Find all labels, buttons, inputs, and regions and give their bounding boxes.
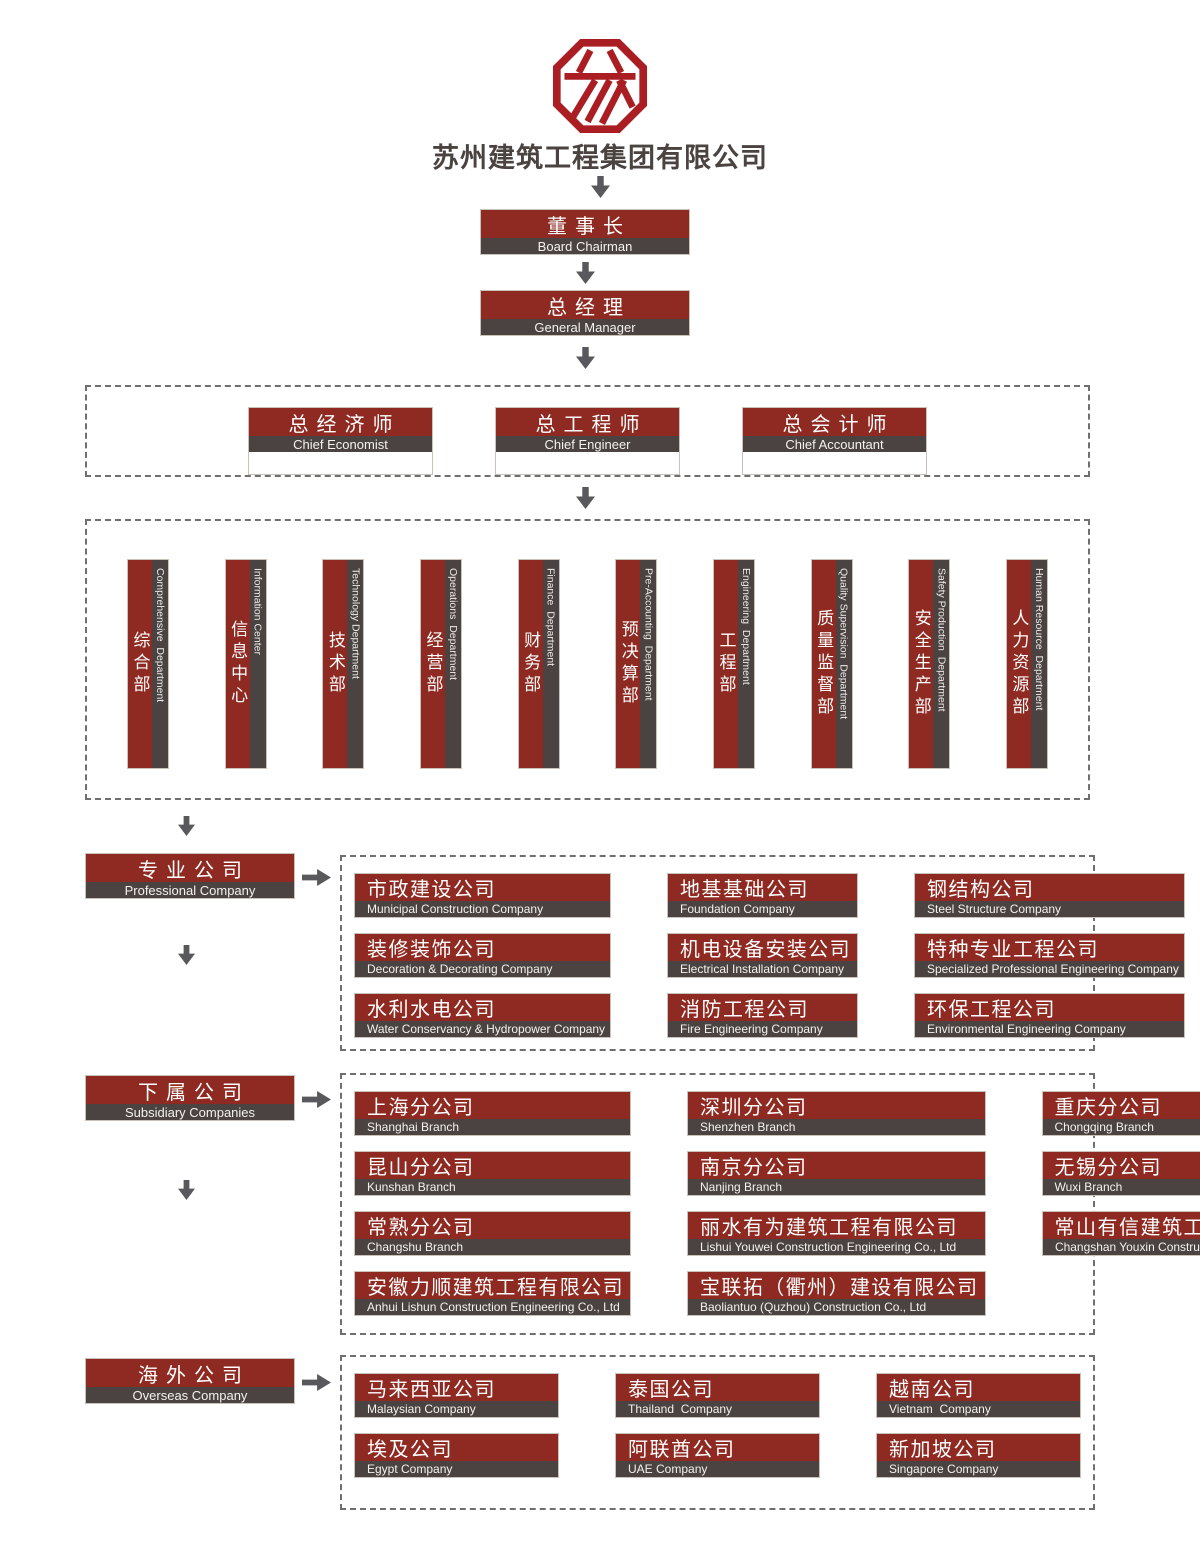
- node-title-zh: 总经理: [481, 291, 689, 319]
- node-company: 市政建设公司 Municipal Construction Company: [354, 873, 611, 918]
- company-name-en: Malaysian Company: [355, 1401, 558, 1417]
- department-name-en: Information Center: [250, 560, 266, 768]
- label-zh: 专业公司: [86, 854, 294, 882]
- company-name-en: Shenzhen Branch: [688, 1119, 985, 1135]
- department-name-zh: 工程部: [714, 560, 738, 768]
- node-chief: 总工程师 Chief Engineer: [495, 407, 680, 475]
- node-company: 丽水有为建筑工程有限公司 Lishui Youwei Construction …: [687, 1211, 986, 1256]
- node-company: 无锡分公司 Wuxi Branch: [1042, 1151, 1200, 1196]
- company-name-zh: 常山有信建筑工程有限公司: [1043, 1212, 1200, 1239]
- company-name-en: UAE Company: [616, 1461, 819, 1477]
- company-name-zh: 越南公司: [877, 1374, 1080, 1401]
- node-department: 技术部 Technology Department: [322, 559, 364, 769]
- node-company: 埃及公司 Egypt Company: [354, 1433, 559, 1478]
- department-name-zh: 技术部: [323, 560, 347, 768]
- node-title-en: Chief Economist: [249, 436, 432, 452]
- company-name-en: Nanjing Branch: [688, 1179, 985, 1195]
- company-name-zh: 装修装饰公司: [355, 934, 610, 961]
- chiefs-group: 总经济师 Chief Economist 总工程师 Chief Engineer…: [85, 385, 1090, 477]
- node-title-en: Board Chairman: [481, 238, 689, 254]
- department-name-zh: 质量监督部: [812, 560, 836, 768]
- company-name-en: Baoliantuo (Quzhou) Construction Co., Lt…: [688, 1299, 985, 1315]
- company-name-zh: 泰国公司: [616, 1374, 819, 1401]
- node-department: 财务部 Finance Department: [518, 559, 560, 769]
- node-company: 环保工程公司 Environmental Engineering Company: [914, 993, 1185, 1038]
- node-company: 机电设备安装公司 Electrical Installation Company: [667, 933, 858, 978]
- company-name-zh: 重庆分公司: [1043, 1092, 1200, 1119]
- node-company: 宝联拓（衢州）建设有限公司 Baoliantuo (Quzhou) Constr…: [687, 1271, 986, 1316]
- company-name-en: Electrical Installation Company: [668, 961, 857, 977]
- node-general-manager: 总经理 General Manager: [480, 290, 690, 336]
- company-name-en: Thailand Company: [616, 1401, 819, 1417]
- department-name-en: Engineering Department: [738, 560, 754, 768]
- flow-arrow-down-icon: [178, 816, 195, 836]
- node-title-zh: 总工程师: [496, 408, 679, 436]
- company-name-en: Steel Structure Company: [915, 901, 1184, 917]
- company-name-zh: 钢结构公司: [915, 874, 1184, 901]
- label-subsidiary-companies: 下属公司 Subsidiary Companies: [85, 1075, 295, 1121]
- node-company: 昆山分公司 Kunshan Branch: [354, 1151, 631, 1196]
- company-name-en: Kunshan Branch: [355, 1179, 630, 1195]
- node-title-en: Chief Engineer: [496, 436, 679, 452]
- company-name-en: Water Conservancy & Hydropower Company: [355, 1021, 610, 1037]
- node-company: 钢结构公司 Steel Structure Company: [914, 873, 1185, 918]
- company-name-en: Lishui Youwei Construction Engineering C…: [688, 1239, 985, 1255]
- company-name-en: Changshu Branch: [355, 1239, 630, 1255]
- company-name-zh: 南京分公司: [688, 1152, 985, 1179]
- node-company: 消防工程公司 Fire Engineering Company: [667, 993, 858, 1038]
- node-company: 新加坡公司 Singapore Company: [876, 1433, 1081, 1478]
- label-overseas-company: 海外公司 Overseas Company: [85, 1358, 295, 1404]
- node-department: 经营部 Operations Department: [420, 559, 462, 769]
- node-chief: 总经济师 Chief Economist: [248, 407, 433, 475]
- professional-companies-group: 市政建设公司 Municipal Construction Company 地基…: [340, 855, 1095, 1051]
- company-name-zh: 特种专业工程公司: [915, 934, 1184, 961]
- node-department: 预决算部 Pre-Accounting Department: [615, 559, 657, 769]
- node-company: 常山有信建筑工程有限公司 Changshan Youxin Constructi…: [1042, 1211, 1200, 1256]
- company-name-zh: 消防工程公司: [668, 994, 857, 1021]
- label-en: Subsidiary Companies: [86, 1104, 294, 1120]
- company-name-en: Municipal Construction Company: [355, 901, 610, 917]
- org-chart-page: 苏州建筑工程集团有限公司 董事长 Board Chairman 总经理 Gene…: [0, 0, 1200, 1554]
- company-name-en: Specialized Professional Engineering Com…: [915, 961, 1184, 977]
- node-department: 信息中心 Information Center: [225, 559, 267, 769]
- node-title-en: Chief Accountant: [743, 436, 926, 452]
- company-name-en: Egypt Company: [355, 1461, 558, 1477]
- department-name-en: Operations Department: [445, 560, 461, 768]
- node-board-chairman: 董事长 Board Chairman: [480, 209, 690, 255]
- company-name: 苏州建筑工程集团有限公司: [0, 136, 1200, 175]
- department-name-zh: 信息中心: [226, 560, 250, 768]
- node-title-zh: 总经济师: [249, 408, 432, 436]
- node-company: 地基基础公司 Foundation Company: [667, 873, 858, 918]
- department-name-en: Quality Supervision Department: [836, 560, 852, 768]
- node-title-en: General Manager: [481, 319, 689, 335]
- department-name-zh: 安全生产部: [909, 560, 933, 768]
- flow-arrow-down-icon: [178, 1180, 195, 1200]
- company-name-zh: 地基基础公司: [668, 874, 857, 901]
- brand-header: 苏州建筑工程集团有限公司: [0, 38, 1200, 175]
- label-zh: 海外公司: [86, 1359, 294, 1387]
- company-name-en: Anhui Lishun Construction Engineering Co…: [355, 1299, 630, 1315]
- company-name-zh: 埃及公司: [355, 1434, 558, 1461]
- node-company: 常熟分公司 Changshu Branch: [354, 1211, 631, 1256]
- company-name-zh: 深圳分公司: [688, 1092, 985, 1119]
- company-name-en: Foundation Company: [668, 901, 857, 917]
- department-name-en: Finance Department: [543, 560, 559, 768]
- department-name-zh: 经营部: [421, 560, 445, 768]
- node-company: 南京分公司 Nanjing Branch: [687, 1151, 986, 1196]
- flow-arrow-down-icon: [576, 262, 595, 284]
- company-name-zh: 安徽力顺建筑工程有限公司: [355, 1272, 630, 1299]
- department-name-en: Human Resource Department: [1031, 560, 1047, 768]
- company-name-en: Environmental Engineering Company: [915, 1021, 1184, 1037]
- company-name-zh: 丽水有为建筑工程有限公司: [688, 1212, 985, 1239]
- company-logo-icon: [544, 38, 656, 134]
- company-name-en: Changshan Youxin Construction Engineerin…: [1043, 1239, 1200, 1255]
- department-name-zh: 预决算部: [616, 560, 640, 768]
- company-name-en: Vietnam Company: [877, 1401, 1080, 1417]
- node-chief: 总会计师 Chief Accountant: [742, 407, 927, 475]
- department-name-zh: 综合部: [128, 560, 152, 768]
- department-name-zh: 财务部: [519, 560, 543, 768]
- node-company: 水利水电公司 Water Conservancy & Hydropower Co…: [354, 993, 611, 1038]
- flow-arrow-down-icon: [178, 945, 195, 965]
- company-name-en: Shanghai Branch: [355, 1119, 630, 1135]
- company-name-zh: 上海分公司: [355, 1092, 630, 1119]
- flow-arrow-right-icon: [302, 869, 331, 886]
- subsidiary-companies-group: 上海分公司 Shanghai Branch 深圳分公司 Shenzhen Bra…: [340, 1073, 1095, 1335]
- company-name-en: Chongqing Branch: [1043, 1119, 1200, 1135]
- company-name-en: Decoration & Decorating Company: [355, 961, 610, 977]
- company-name-zh: 机电设备安装公司: [668, 934, 857, 961]
- flow-arrow-down-icon: [591, 176, 610, 198]
- company-name-en: Singapore Company: [877, 1461, 1080, 1477]
- overseas-companies-group: 马来西亚公司 Malaysian Company 泰国公司 Thailand C…: [340, 1355, 1095, 1510]
- node-department: 安全生产部 Safety Production Department: [908, 559, 950, 769]
- flow-arrow-down-icon: [576, 487, 595, 509]
- node-company: 阿联酋公司 UAE Company: [615, 1433, 820, 1478]
- label-professional-company: 专业公司 Professional Company: [85, 853, 295, 899]
- flow-arrow-down-icon: [576, 347, 595, 369]
- department-name-en: Technology Department: [347, 560, 363, 768]
- node-title-zh: 董事长: [481, 210, 689, 238]
- company-name-en: Wuxi Branch: [1043, 1179, 1200, 1195]
- node-title-zh: 总会计师: [743, 408, 926, 436]
- department-name-zh: 人力资源部: [1007, 560, 1031, 768]
- company-name-en: Fire Engineering Company: [668, 1021, 857, 1037]
- node-company: 马来西亚公司 Malaysian Company: [354, 1373, 559, 1418]
- company-name-zh: 阿联酋公司: [616, 1434, 819, 1461]
- node-department: 人力资源部 Human Resource Department: [1006, 559, 1048, 769]
- company-name-zh: 无锡分公司: [1043, 1152, 1200, 1179]
- node-department: 质量监督部 Quality Supervision Department: [811, 559, 853, 769]
- company-name-zh: 宝联拓（衢州）建设有限公司: [688, 1272, 985, 1299]
- node-department: 综合部 Comprehensive Department: [127, 559, 169, 769]
- company-name-zh: 马来西亚公司: [355, 1374, 558, 1401]
- department-name-en: Safety Production Department: [933, 560, 949, 768]
- company-name-zh: 常熟分公司: [355, 1212, 630, 1239]
- company-name-zh: 昆山分公司: [355, 1152, 630, 1179]
- company-name-zh: 新加坡公司: [877, 1434, 1080, 1461]
- flow-arrow-right-icon: [302, 1374, 331, 1391]
- department-name-en: Pre-Accounting Department: [640, 560, 656, 768]
- company-name-zh: 市政建设公司: [355, 874, 610, 901]
- node-company: 深圳分公司 Shenzhen Branch: [687, 1091, 986, 1136]
- departments-group: 综合部 Comprehensive Department 信息中心 Inform…: [85, 519, 1090, 800]
- company-name-zh: 环保工程公司: [915, 994, 1184, 1021]
- node-company: 安徽力顺建筑工程有限公司 Anhui Lishun Construction E…: [354, 1271, 631, 1316]
- node-company: 越南公司 Vietnam Company: [876, 1373, 1081, 1418]
- node-company: 特种专业工程公司 Specialized Professional Engine…: [914, 933, 1185, 978]
- flow-arrow-right-icon: [302, 1091, 331, 1108]
- node-company: 泰国公司 Thailand Company: [615, 1373, 820, 1418]
- node-department: 工程部 Engineering Department: [713, 559, 755, 769]
- label-zh: 下属公司: [86, 1076, 294, 1104]
- node-company: 上海分公司 Shanghai Branch: [354, 1091, 631, 1136]
- label-en: Overseas Company: [86, 1387, 294, 1403]
- node-company: 重庆分公司 Chongqing Branch: [1042, 1091, 1200, 1136]
- department-name-en: Comprehensive Department: [152, 560, 168, 768]
- label-en: Professional Company: [86, 882, 294, 898]
- company-name-zh: 水利水电公司: [355, 994, 610, 1021]
- node-company: 装修装饰公司 Decoration & Decorating Company: [354, 933, 611, 978]
